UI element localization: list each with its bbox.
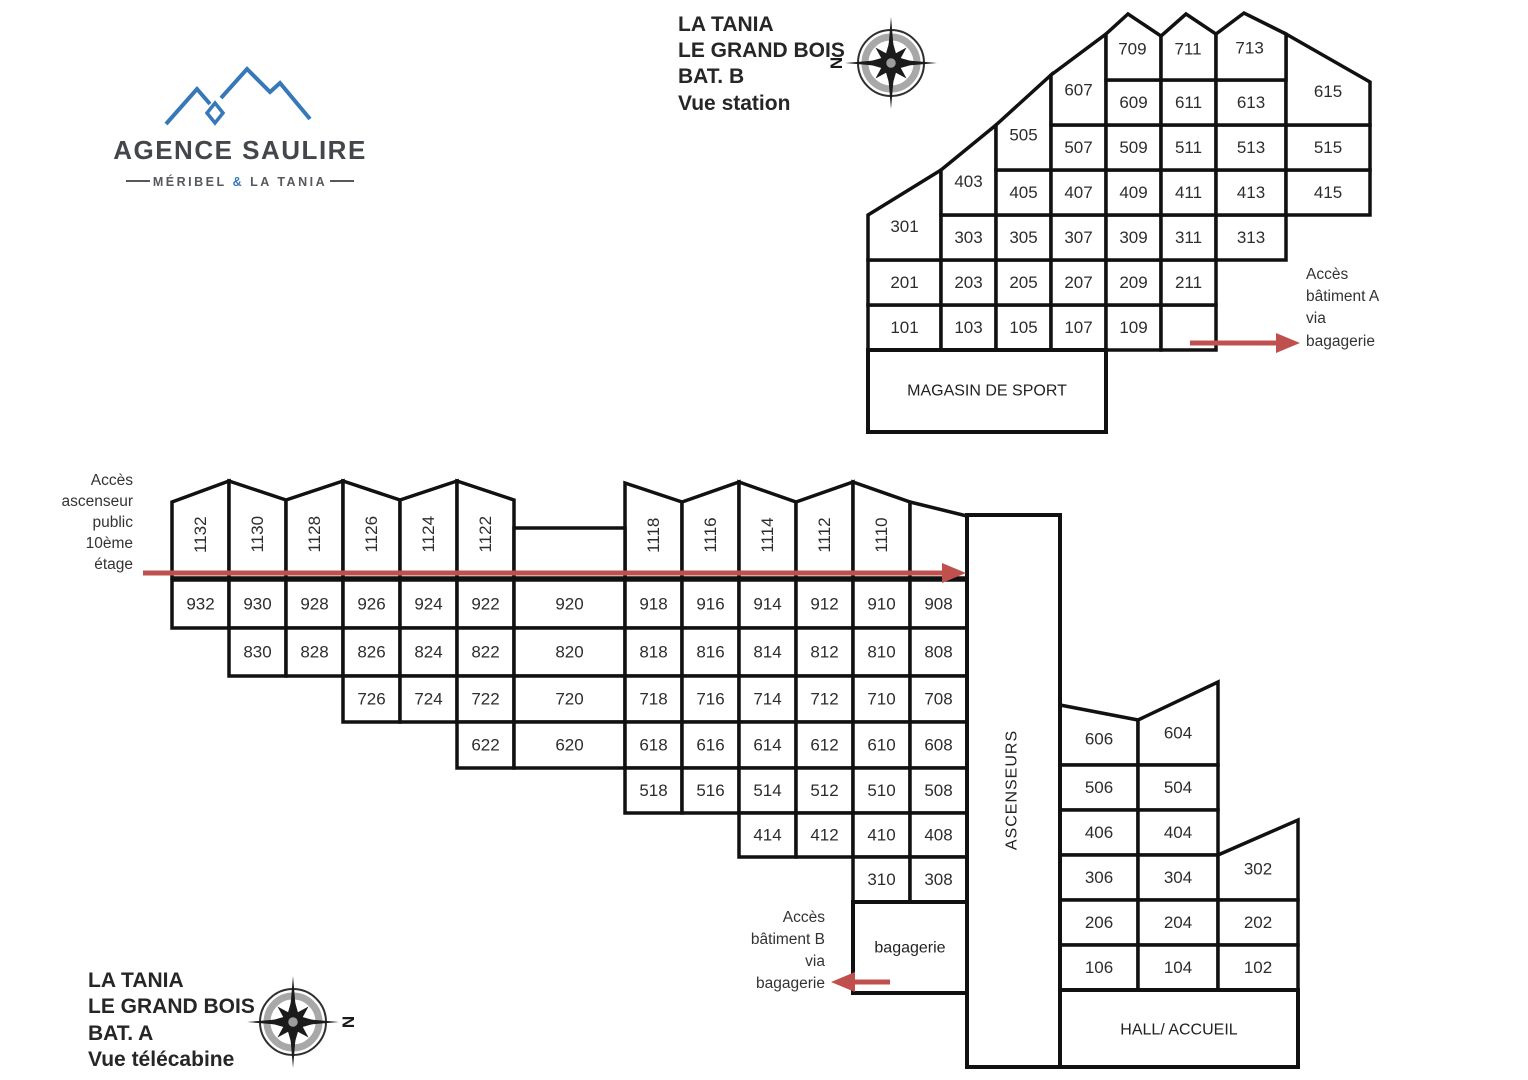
room-number: 109 (1119, 318, 1147, 337)
room-number: 808 (924, 643, 952, 662)
note-line: 10ème (86, 535, 133, 552)
note-line: Accès (1306, 266, 1348, 283)
room-number: 313 (1237, 228, 1265, 247)
room-number: 713 (1235, 39, 1263, 58)
note-line: public (93, 514, 134, 531)
room-number: 722 (471, 690, 499, 709)
room-number: 724 (414, 690, 442, 709)
room-number: 206 (1085, 913, 1113, 932)
room-number: 607 (1064, 80, 1092, 99)
room-number: 613 (1237, 93, 1265, 112)
room-number: 615 (1314, 82, 1342, 101)
room-number: 415 (1314, 183, 1342, 202)
room-number: 515 (1314, 138, 1342, 157)
room-number: 816 (696, 643, 724, 662)
room-number: 403 (954, 172, 982, 191)
room-number: 814 (753, 643, 781, 662)
room-number: 513 (1237, 138, 1265, 157)
access-batiment-a-note: Accès bâtiment A via bagagerie (1306, 266, 1380, 350)
room-number: 620 (555, 736, 583, 755)
room-number: 910 (867, 595, 895, 614)
title-b-line-3: BAT. B (678, 65, 744, 88)
room-number: 1124 (419, 516, 438, 553)
room-number: 918 (639, 595, 667, 614)
room-number: 103 (954, 318, 982, 337)
room-number: 922 (471, 595, 499, 614)
compass-rose-a-icon (247, 976, 339, 1068)
room-number: 611 (1175, 93, 1202, 112)
room-number: 203 (954, 273, 982, 292)
mountain-logo-icon (221, 69, 310, 119)
room-number: 711 (1174, 39, 1201, 58)
room-number: 828 (300, 643, 328, 662)
room-number: 518 (639, 781, 667, 800)
access-batiment-b-note: Accès bâtiment B via bagagerie (751, 909, 825, 992)
room-number: 104 (1164, 958, 1192, 977)
room-number: 102 (1244, 958, 1272, 977)
subtitle-ampersand: & (233, 175, 245, 189)
room-number: 205 (1009, 273, 1037, 292)
room-number: 308 (924, 870, 952, 889)
note-line: bagagerie (1306, 333, 1375, 350)
room-number: 406 (1085, 823, 1113, 842)
roof-slope-cell (910, 502, 967, 578)
room-number: 411 (1175, 183, 1202, 202)
room-number: 718 (639, 690, 667, 709)
title-b-line-2: LE GRAND BOIS (678, 39, 845, 62)
building-b-title: LA TANIA LE GRAND BOIS BAT. B Vue statio… (678, 13, 845, 115)
diamond-logo-icon (207, 103, 223, 123)
room-number: 207 (1064, 273, 1092, 292)
room-number: 1132 (191, 516, 210, 553)
room-number: 311 (1175, 228, 1202, 247)
room-number: 606 (1085, 729, 1113, 748)
note-line: bagagerie (756, 975, 825, 992)
room-number: 720 (555, 690, 583, 709)
room-number: 916 (696, 595, 724, 614)
subtitle-la-tania: LA TANIA (250, 175, 327, 189)
room-number: 926 (357, 595, 385, 614)
compass-north-b: N (827, 57, 846, 69)
room-number: 708 (924, 690, 952, 709)
room-number: 810 (867, 643, 895, 662)
room-number: 410 (867, 826, 895, 845)
room-number: 405 (1009, 183, 1037, 202)
room-number: 106 (1085, 958, 1113, 977)
room-number: 305 (1009, 228, 1037, 247)
room-number: 1128 (305, 516, 324, 553)
room-number: 604 (1164, 724, 1192, 743)
room-number: 202 (1244, 913, 1272, 932)
room-number: 504 (1164, 778, 1192, 797)
compass-rose-b-icon (845, 17, 937, 109)
room-number: 822 (471, 643, 499, 662)
room-number: 614 (753, 736, 781, 755)
room-number: 201 (890, 273, 918, 292)
room-number: 101 (890, 318, 918, 337)
room-number: 1112 (815, 517, 834, 552)
room-number: 408 (924, 826, 952, 845)
note-line: Accès (91, 472, 133, 489)
room-number: 413 (1237, 183, 1265, 202)
room-number: 514 (753, 781, 781, 800)
room-number: 511 (1175, 138, 1202, 157)
room-number: 412 (810, 826, 838, 845)
agency-logo: AGENCE SAULIRE MÉRIBEL&LA TANIA (113, 69, 367, 189)
room-number: 920 (555, 595, 583, 614)
room-number: 507 (1064, 138, 1092, 157)
room-number: 824 (414, 643, 442, 662)
room-number: 826 (357, 643, 385, 662)
room-number: 303 (954, 228, 982, 247)
room-number: 710 (867, 690, 895, 709)
room-number: 211 (1175, 273, 1202, 292)
room-number: 608 (924, 736, 952, 755)
room-number: 908 (924, 595, 952, 614)
room-number: 924 (414, 595, 442, 614)
room-number: 914 (753, 595, 781, 614)
room-cell-301 (868, 170, 941, 260)
room-number: 932 (186, 595, 214, 614)
compass-north-a: N (339, 1016, 358, 1028)
note-line: via (1306, 310, 1326, 327)
note-line: étage (94, 556, 133, 573)
title-a-line-3: BAT. A (88, 1022, 153, 1045)
room-number: 1118 (644, 518, 663, 553)
room-number: 302 (1244, 859, 1272, 878)
public-elevator-note: Accès ascenseur public 10ème étage (61, 472, 133, 573)
subtitle-meribel: MÉRIBEL (153, 174, 227, 189)
room-number: 209 (1119, 273, 1147, 292)
room-number: 610 (867, 736, 895, 755)
room-cell-615 (1286, 34, 1370, 125)
room-number: 612 (810, 736, 838, 755)
room-number: 714 (753, 690, 781, 709)
room-number: 709 (1118, 39, 1146, 58)
room-number: 409 (1119, 183, 1147, 202)
room-number: 712 (810, 690, 838, 709)
room-number: 510 (867, 781, 895, 800)
note-line: Accès (783, 909, 825, 926)
room-number: 930 (243, 595, 271, 614)
room-cell-505 (996, 75, 1051, 170)
room-number: 1122 (476, 516, 495, 553)
room-number: 1130 (248, 516, 267, 553)
room-number: 618 (639, 736, 667, 755)
room-number: 306 (1085, 868, 1113, 887)
title-b-line-4: Vue station (678, 92, 790, 115)
room-number: 107 (1064, 318, 1092, 337)
room-number: 912 (810, 595, 838, 614)
room-number: 505 (1009, 126, 1037, 145)
room-cell-403 (941, 125, 996, 215)
note-line: via (805, 953, 825, 970)
room-number: 818 (639, 643, 667, 662)
bagagerie-label: bagagerie (874, 940, 945, 957)
note-line: bâtiment B (751, 931, 825, 948)
room-number: 609 (1119, 93, 1147, 112)
title-a-line-4: Vue télécabine (88, 1048, 234, 1071)
room-number: 509 (1119, 138, 1147, 157)
room-number: 820 (555, 643, 583, 662)
room-number: 512 (810, 781, 838, 800)
room-number: 726 (357, 690, 385, 709)
mountain-logo-icon (166, 89, 210, 124)
room-number: 506 (1085, 778, 1113, 797)
room-number: 105 (1009, 318, 1037, 337)
room-number: 414 (753, 826, 781, 845)
room-number: 1116 (701, 517, 720, 552)
room-number: 301 (890, 217, 918, 236)
room-number: 716 (696, 690, 724, 709)
room-number: 1110 (872, 517, 891, 552)
building-a-title: LA TANIA LE GRAND BOIS BAT. A Vue téléca… (88, 969, 255, 1071)
room-number: 307 (1064, 228, 1092, 247)
room-number: 404 (1164, 823, 1192, 842)
agency-name: AGENCE SAULIRE (113, 135, 367, 165)
hall-accueil-label: HALL/ ACCUEIL (1120, 1022, 1237, 1039)
room-number: 407 (1064, 183, 1092, 202)
room-number: 204 (1164, 913, 1192, 932)
room-number: 1114 (758, 517, 777, 552)
note-line: ascenseur (61, 493, 133, 510)
room-number: 1126 (362, 516, 381, 553)
title-a-line-2: LE GRAND BOIS (88, 995, 255, 1018)
room-number: 616 (696, 736, 724, 755)
room-number: 310 (867, 870, 895, 889)
room-number: 830 (243, 643, 271, 662)
room-number: 928 (300, 595, 328, 614)
room-number: 812 (810, 643, 838, 662)
building-b-rooms: 1011031051071092012032052072092113013033… (868, 13, 1370, 350)
note-line: bâtiment A (1306, 288, 1380, 305)
ascenseurs-label: ASCENSEURS (1004, 730, 1021, 850)
room-number: 304 (1164, 868, 1192, 887)
room-number: 622 (471, 736, 499, 755)
agency-subtitle: MÉRIBEL&LA TANIA (153, 174, 327, 189)
title-b-line-1: LA TANIA (678, 13, 774, 36)
room-number: 309 (1119, 228, 1147, 247)
magasin-de-sport-label: MAGASIN DE SPORT (907, 383, 1067, 400)
building-a-rooms: 1132113011281126112411221118111611141112… (172, 481, 1298, 990)
floor-plan-page: AGENCE SAULIRE MÉRIBEL&LA TANIA LA TANIA… (0, 0, 1528, 1080)
room-number: 508 (924, 781, 952, 800)
floor-plan-svg: AGENCE SAULIRE MÉRIBEL&LA TANIA LA TANIA… (0, 0, 1528, 1080)
title-a-line-1: LA TANIA (88, 969, 184, 992)
room-number: 516 (696, 781, 724, 800)
